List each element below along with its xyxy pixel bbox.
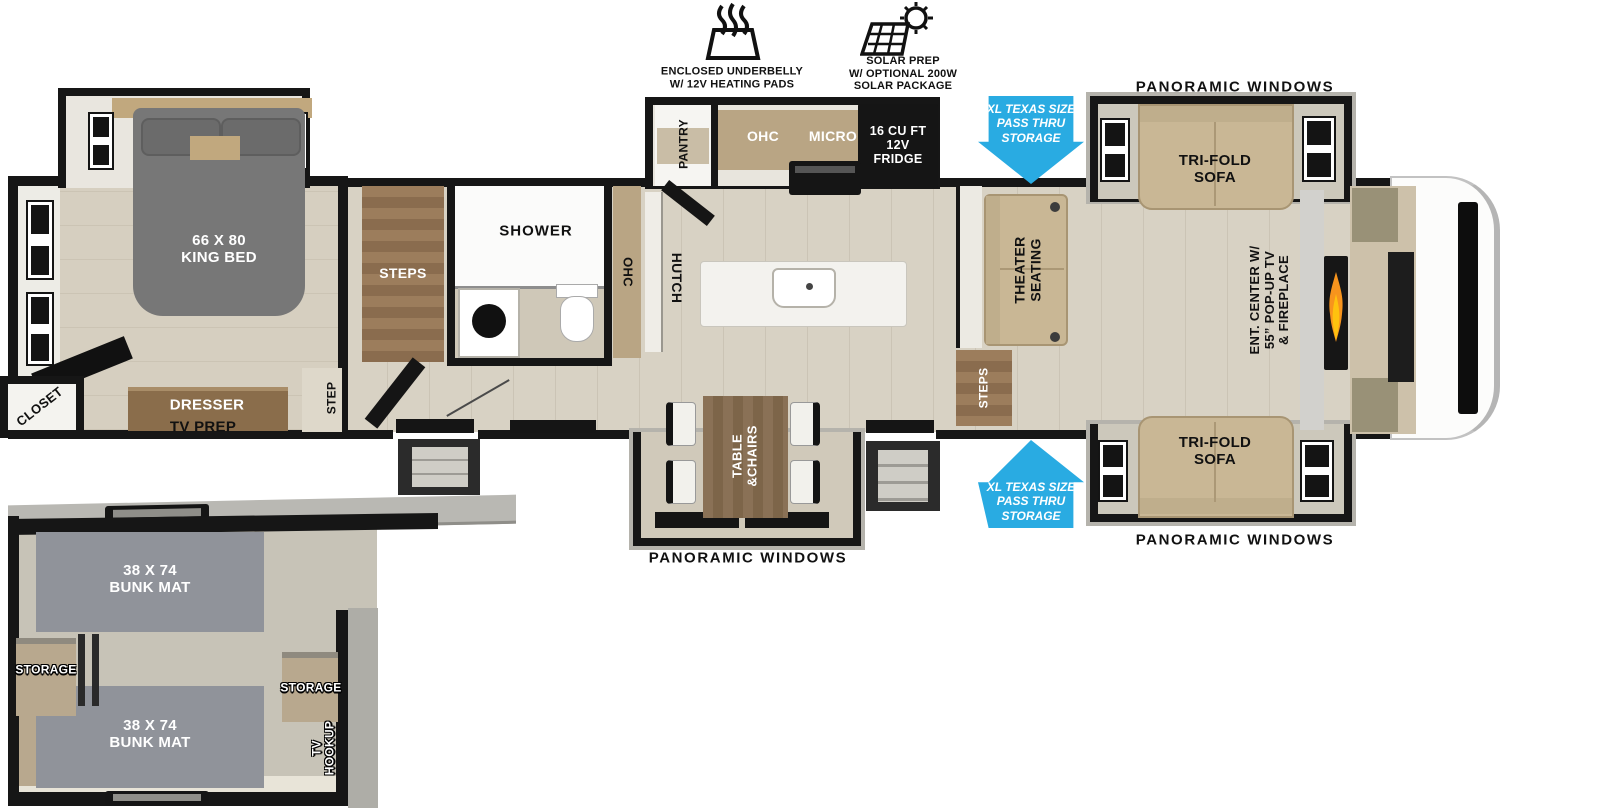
entry-steps-2-treads <box>878 450 928 502</box>
galley-end-face <box>960 186 982 348</box>
ent-back-panel <box>1300 190 1324 430</box>
bed-throw <box>190 136 240 160</box>
passthru-top-label: XL TEXAS SIZE PASS THRU STORAGE <box>978 102 1084 145</box>
ohc-side-label: OHC <box>620 257 635 287</box>
bunk-storage-right-label: STORAGE <box>280 681 341 694</box>
solar-label: SOLAR PREP W/ OPTIONAL 200W SOLAR PACKAG… <box>823 55 983 93</box>
bunk-mat-bottom-label: 38 X 74 BUNK MAT <box>109 718 190 752</box>
living-steps-label: STEPS <box>977 368 990 409</box>
dinette-chair-2 <box>666 460 696 504</box>
ent-cabinet-bottom <box>1352 378 1398 432</box>
heating-pads-icon <box>700 2 766 62</box>
dinette-chair-1 <box>666 402 696 446</box>
sofa-bottom-backrest <box>1140 498 1292 514</box>
cupholder-top <box>1050 202 1060 212</box>
fireplace-flame-icon <box>1326 268 1346 358</box>
bed-slide-window-left <box>88 112 114 170</box>
bedroom-window-left-1 <box>26 200 54 280</box>
pantry-label: PANTRY <box>677 119 690 169</box>
bunk-mat-top-label: 38 X 74 BUNK MAT <box>109 563 190 597</box>
washer-door <box>472 304 506 338</box>
hutch-label: HUTCH <box>668 253 684 304</box>
bunk-wall-side-3d <box>348 608 378 808</box>
bedroom-step-label: STEP <box>325 382 338 415</box>
stairs-label: STEPS <box>379 266 426 282</box>
bunk-storage-left-label: STORAGE <box>15 663 76 676</box>
shower-label: SHOWER <box>499 224 573 241</box>
ent-cabinet-top <box>1352 188 1398 242</box>
dinette-chair-4 <box>790 460 820 504</box>
passthru-arrow-down: XL TEXAS SIZE PASS THRU STORAGE <box>978 96 1084 184</box>
toilet <box>560 296 594 342</box>
floorplan-canvas: ENCLOSED UNDERBELLY W/ 12V HEATING PADS … <box>0 0 1600 811</box>
island-sink <box>772 268 836 308</box>
bunk-floor-hatch-inner <box>113 794 201 801</box>
ent-tv-slot <box>1388 252 1414 382</box>
theater-label: THEATER SEATING <box>1012 236 1043 303</box>
theater-backrest <box>986 196 1000 344</box>
tv-prep-label: TV PREP <box>170 420 236 437</box>
bottom-wall-3 <box>936 430 1090 439</box>
bottom-slide-window-right <box>1300 440 1334 502</box>
bunk-ladder-rail-2 <box>92 634 99 706</box>
sofa-bottom-label: TRI-FOLD SOFA <box>1179 435 1251 469</box>
panoramic-bottom-label: PANORAMIC WINDOWS <box>1070 533 1400 550</box>
door-threshold-1 <box>396 419 474 433</box>
door-threshold-2 <box>866 420 934 433</box>
king-bed-label: 66 X 80 KING BED <box>181 233 257 267</box>
tv-hookup-label: TV HOOKUP <box>311 721 338 775</box>
dinette-table-label: TABLE &CHAIRS <box>730 425 759 486</box>
hutch-cabinet <box>645 192 663 352</box>
bedroom-window-left-2 <box>26 292 54 366</box>
cupholder-bottom <box>1050 332 1060 342</box>
dresser-label: DRESSER <box>170 398 245 415</box>
passthru-arrow-up: XL TEXAS SIZE PASS THRU STORAGE <box>978 440 1084 528</box>
panoramic-top-label: PANORAMIC WINDOWS <box>1070 80 1400 97</box>
ohc-label: OHC <box>747 129 779 145</box>
bottom-wall-1 <box>345 430 393 439</box>
entry-steps-1-treads <box>412 447 468 487</box>
panoramic-dinette-label: PANORAMIC WINDOWS <box>583 551 913 568</box>
ent-center-label: ENT. CENTER W/ 55” POP-UP TV & FIREPLACE <box>1248 210 1292 390</box>
micro-label: MICRO <box>809 129 857 145</box>
pantry-wall <box>711 105 718 189</box>
sink-faucet <box>806 283 813 290</box>
fridge-label: 16 CU FT 12V FRIDGE <box>870 124 927 166</box>
top-slide-window-right <box>1302 116 1336 182</box>
sofa-top-backrest <box>1140 106 1292 122</box>
bunk-side-cabinet <box>19 690 36 786</box>
solar-panel-icon <box>860 2 934 58</box>
front-window-strip <box>1458 202 1478 414</box>
top-slide-window-left <box>1100 118 1130 182</box>
bottom-slide-window-left <box>1098 440 1128 502</box>
stove-top <box>795 166 855 173</box>
passthru-bottom-label: XL TEXAS SIZE PASS THRU STORAGE <box>978 480 1084 523</box>
bunk-ladder-rail-1 <box>78 634 85 706</box>
sofa-top-label: TRI-FOLD SOFA <box>1179 153 1251 187</box>
underbelly-label: ENCLOSED UNDERBELLY W/ 12V HEATING PADS <box>637 65 827 90</box>
dinette-chair-3 <box>790 402 820 446</box>
furnace-vent <box>510 420 596 433</box>
